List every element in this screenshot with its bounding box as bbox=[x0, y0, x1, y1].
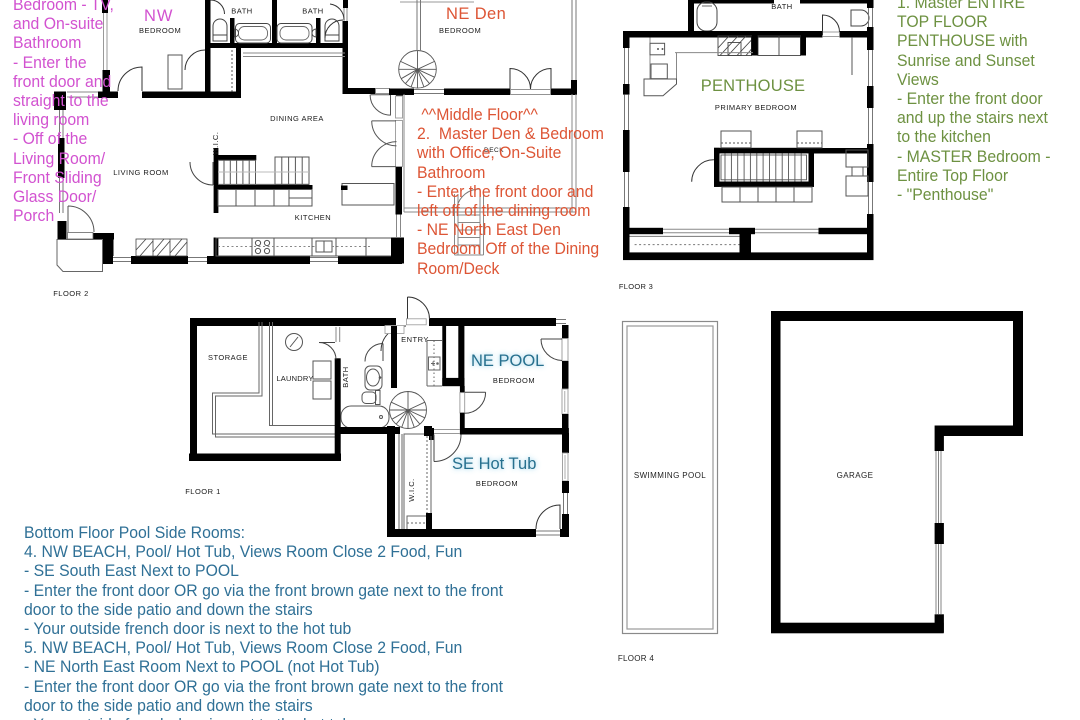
svg-text:LIVING ROOM: LIVING ROOM bbox=[113, 168, 169, 177]
svg-text:PENTHOUSE: PENTHOUSE bbox=[701, 77, 805, 95]
svg-text:W.I.C.: W.I.C. bbox=[211, 132, 220, 155]
svg-text:PRIMARY BEDROOM: PRIMARY BEDROOM bbox=[715, 103, 797, 112]
svg-text:BATH: BATH bbox=[771, 2, 792, 11]
svg-text:W.I.C.: W.I.C. bbox=[407, 478, 416, 501]
svg-text:SWIMMING POOL: SWIMMING POOL bbox=[634, 471, 706, 480]
svg-text:DINING AREA: DINING AREA bbox=[270, 114, 324, 123]
svg-text:ENTRY: ENTRY bbox=[401, 335, 429, 344]
svg-text:FLOOR 1: FLOOR 1 bbox=[185, 487, 221, 496]
svg-text:BEDROOM: BEDROOM bbox=[493, 376, 535, 385]
svg-text:FLOOR 3: FLOOR 3 bbox=[619, 282, 653, 291]
svg-text:KITCHEN: KITCHEN bbox=[295, 213, 331, 222]
svg-text:BATH: BATH bbox=[341, 366, 350, 387]
svg-text:BATH: BATH bbox=[231, 7, 252, 16]
svg-text:STORAGE: STORAGE bbox=[208, 353, 248, 362]
svg-text:BEDROOM: BEDROOM bbox=[439, 26, 481, 35]
svg-text:LAUNDRY: LAUNDRY bbox=[276, 374, 313, 383]
svg-text:FLOOR 2: FLOOR 2 bbox=[53, 289, 89, 298]
svg-text:BEDROOM: BEDROOM bbox=[476, 479, 518, 488]
svg-text:FLOOR 4: FLOOR 4 bbox=[618, 654, 655, 663]
svg-text:BEDROOM: BEDROOM bbox=[139, 26, 181, 35]
svg-text:BATH: BATH bbox=[302, 7, 323, 16]
svg-text:GARAGE: GARAGE bbox=[837, 471, 874, 480]
